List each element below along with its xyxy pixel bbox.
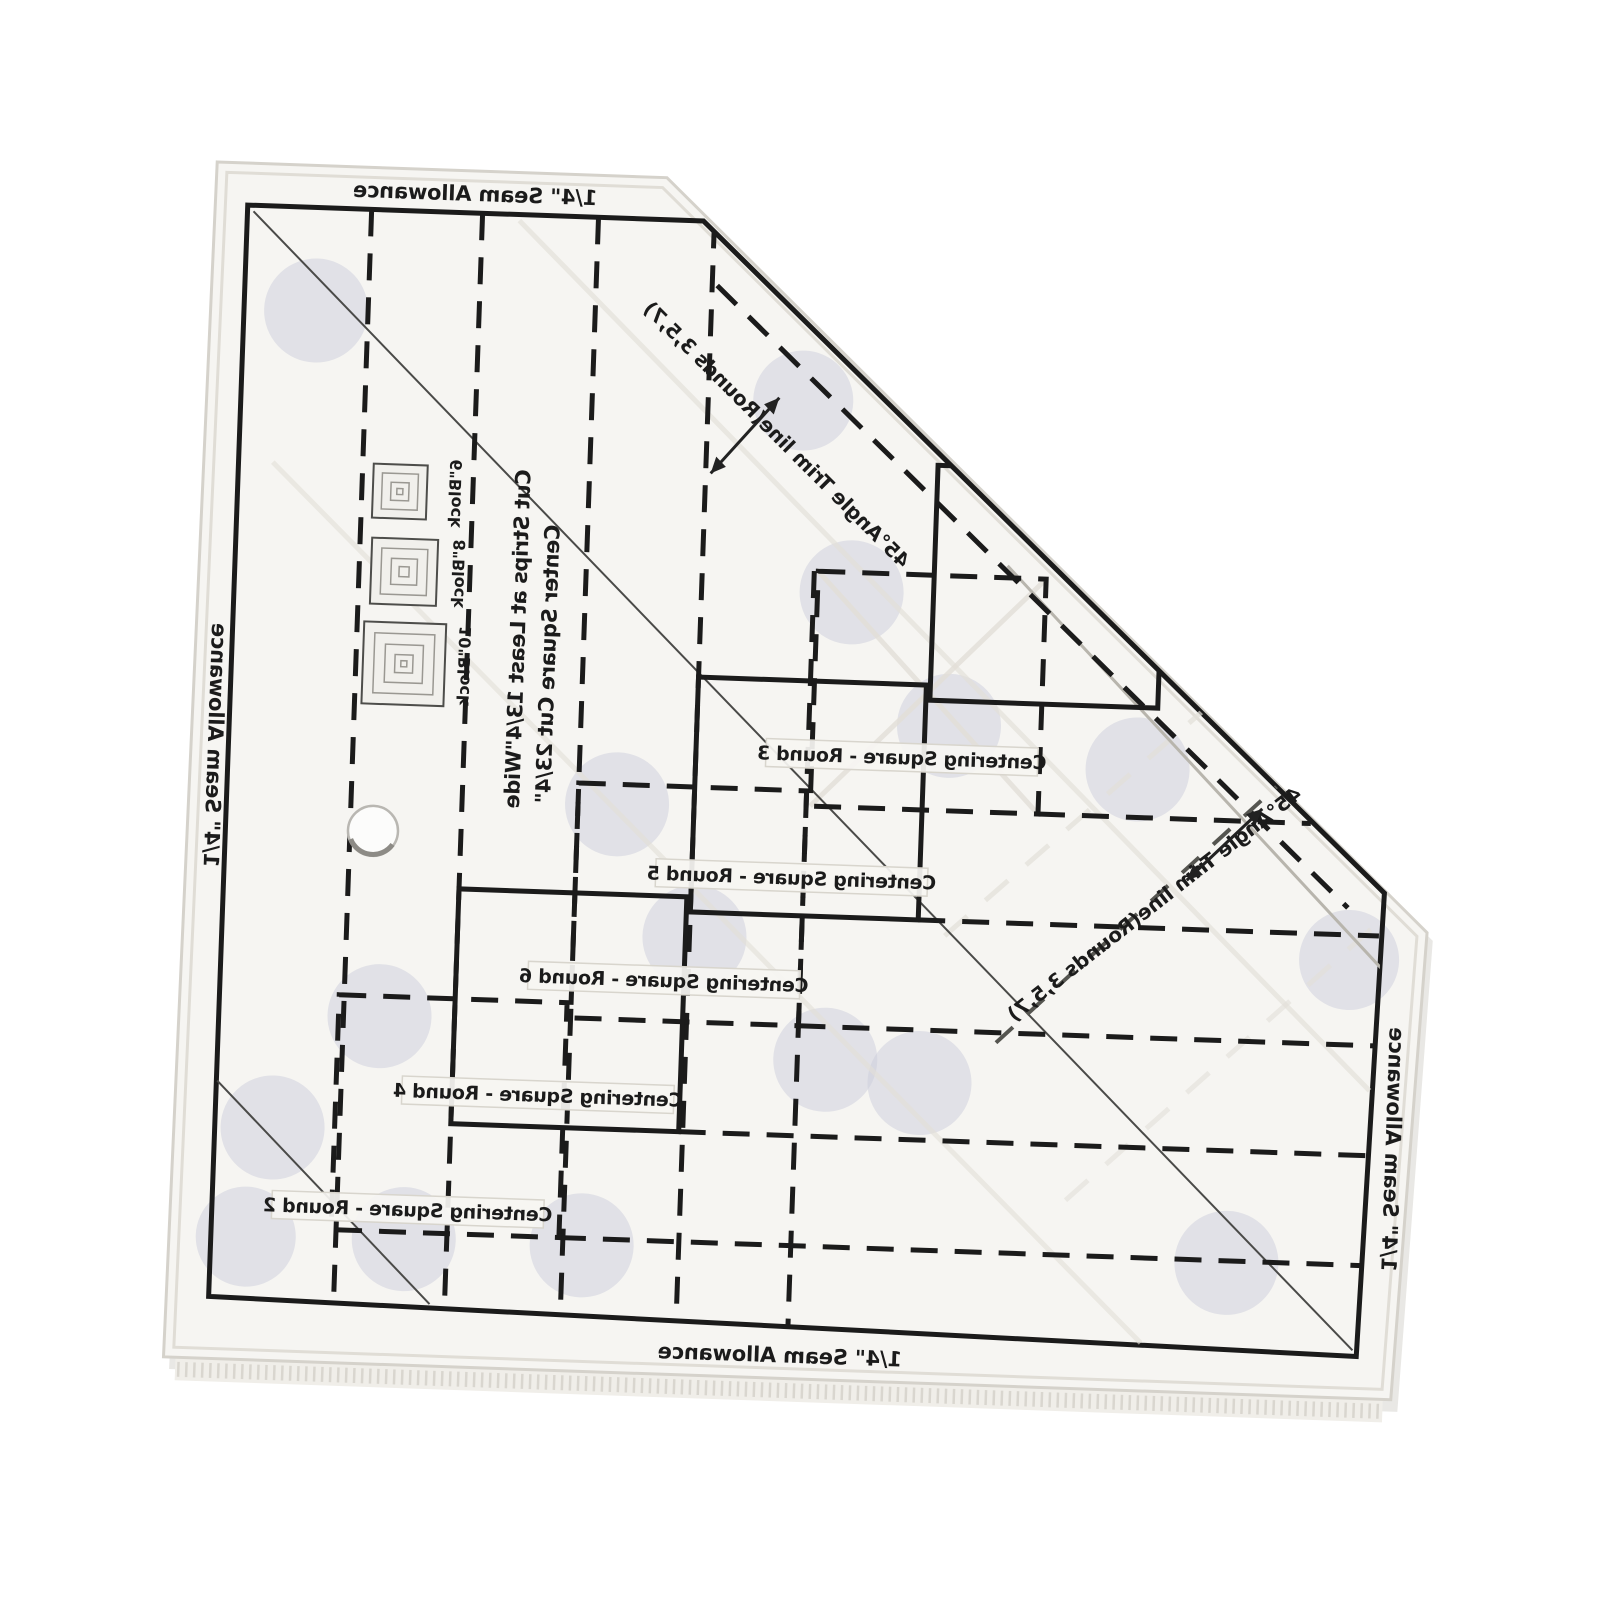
- block-size-legend: 6"Block 8"Block 10"Block: [361, 456, 481, 707]
- block-icon-8: [370, 538, 438, 606]
- block-label-8: 8"Block: [448, 539, 469, 608]
- ruler-photo: Centering Square - Round 3 Centering Squ…: [0, 0, 1600, 1600]
- block-label-10: 10"Block: [453, 626, 475, 706]
- block-icon-6: [372, 464, 428, 520]
- block-label-6: 6"Block: [445, 459, 466, 528]
- block-icon-10: [361, 621, 446, 706]
- hang-hole: [347, 805, 399, 857]
